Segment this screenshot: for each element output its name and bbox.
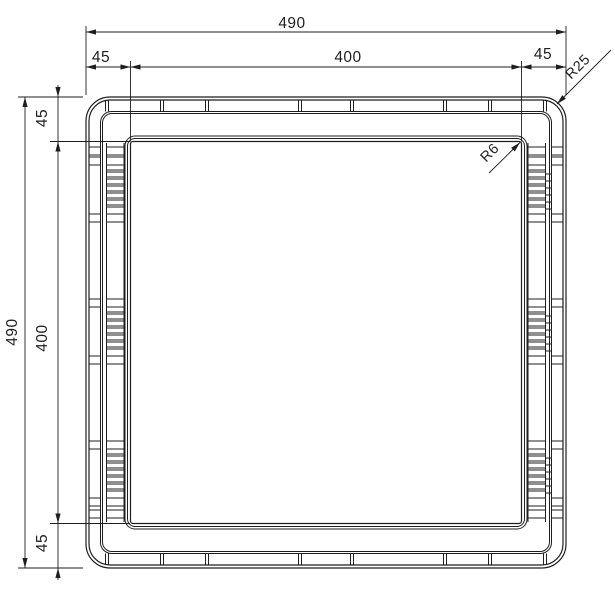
clear-opening-edge — [131, 142, 522, 524]
radius-callout-r6: R6 — [478, 141, 520, 173]
dim-top-overall: 490 — [86, 15, 566, 95]
radius-label-outer: R25 — [563, 52, 594, 83]
dim-label-top-inset-right: 45 — [534, 46, 552, 63]
radius-label-inner: R6 — [478, 141, 503, 166]
plank-band-inner-line-2 — [103, 114, 550, 552]
dim-label-side-inset-bottom: 45 — [34, 534, 51, 552]
left-ladder-rungs — [107, 170, 125, 491]
dim-label-side-overall: 490 — [4, 318, 21, 345]
bottom-plank-separators — [106, 554, 547, 566]
right-ladder-rungs — [528, 170, 546, 491]
technical-drawing-page: 490 45 400 45 490 45 400 45 R25 R6 — [0, 0, 615, 600]
opening-lip-outer-line — [125, 136, 527, 529]
dim-label-top-inset-left: 45 — [92, 49, 110, 66]
opening-lip-inner-line — [128, 139, 525, 527]
plank-band-inner-line-1 — [101, 112, 552, 554]
top-plank-separators — [106, 100, 547, 112]
technical-drawing-canvas: 490 45 400 45 490 45 400 45 R25 R6 — [0, 0, 615, 600]
radius-callout-r25: R25 — [557, 50, 611, 104]
dim-label-top-overall: 490 — [278, 15, 305, 32]
right-band-teeth — [546, 174, 552, 493]
dim-label-top-opening: 400 — [334, 49, 361, 66]
dim-label-side-inset-top: 45 — [34, 109, 51, 127]
dim-top-insets: 45 400 45 — [86, 46, 566, 142]
dim-label-side-opening: 400 — [34, 324, 51, 351]
